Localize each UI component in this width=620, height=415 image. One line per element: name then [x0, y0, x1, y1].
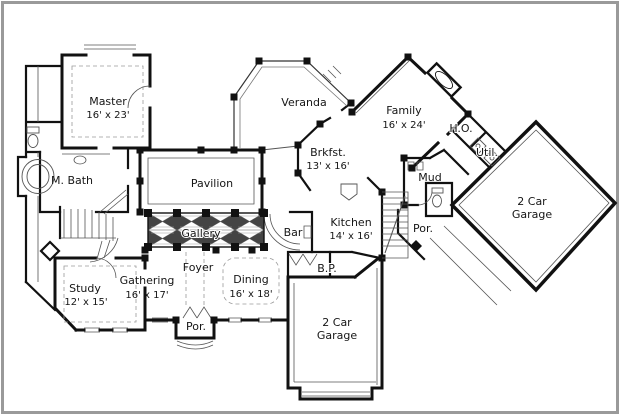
room-label-garage-bottom-2: Garage [317, 329, 358, 342]
floor-plan: Master 16' x 23' M. Bath Veranda Family … [0, 0, 620, 415]
toilet-icon-master [27, 127, 39, 148]
room-dims-breakfast: 13' x 16' [306, 161, 349, 172]
room-label-pavilion: Pavilion [191, 177, 233, 190]
room-label-master-bath: M. Bath [51, 174, 93, 187]
room-labels: Master 16' x 23' M. Bath Veranda Family … [51, 95, 552, 342]
room-label-butlers-pantry: B.P. [317, 262, 336, 275]
room-label-porch-front: Por. [186, 320, 206, 333]
room-label-garage-right-2: Garage [512, 208, 553, 221]
room-label-breakfast: Brkfst. [310, 146, 346, 159]
room-label-dining: Dining [233, 273, 269, 286]
bathtub-icon [22, 160, 54, 194]
room-label-utility: Util. [476, 146, 498, 159]
room-label-garage-right-1: 2 Car [517, 195, 547, 208]
room-dims-master: 16' x 23' [86, 110, 129, 121]
room-label-mud: Mud [418, 171, 441, 184]
kitchen-island-icon [341, 184, 357, 200]
stairs-curved-icon [60, 209, 118, 262]
room-label-study: Study [69, 282, 101, 295]
porch-column-diamond [410, 240, 422, 252]
room-dims-gathering: 16' x 17' [125, 290, 168, 301]
room-label-master: Master [89, 95, 127, 108]
room-dims-dining: 16' x 18' [229, 289, 272, 300]
fireplace-icon [427, 63, 460, 96]
toilet-icon-powder [432, 188, 443, 207]
room-label-porch-rear: Por. [413, 222, 433, 235]
room-label-gathering: Gathering [120, 274, 175, 287]
room-label-home-office: H.O. [449, 122, 472, 135]
room-dims-kitchen: 14' x 16' [329, 231, 372, 242]
room-label-bar: Bar [284, 226, 303, 239]
room-label-family: Family [386, 104, 422, 117]
sink-icon [74, 156, 86, 164]
room-label-gallery: Gallery [181, 227, 221, 240]
room-label-garage-bottom-1: 2 Car [322, 316, 352, 329]
columns [137, 54, 472, 324]
room-label-kitchen: Kitchen [330, 216, 371, 229]
room-dims-study: 12' x 15' [64, 297, 107, 308]
floor-plan-svg: Master 16' x 23' M. Bath Veranda Family … [0, 0, 620, 415]
room-label-veranda: Veranda [281, 96, 326, 109]
room-dims-family: 16' x 24' [382, 120, 425, 131]
room-label-foyer: Foyer [183, 261, 214, 274]
